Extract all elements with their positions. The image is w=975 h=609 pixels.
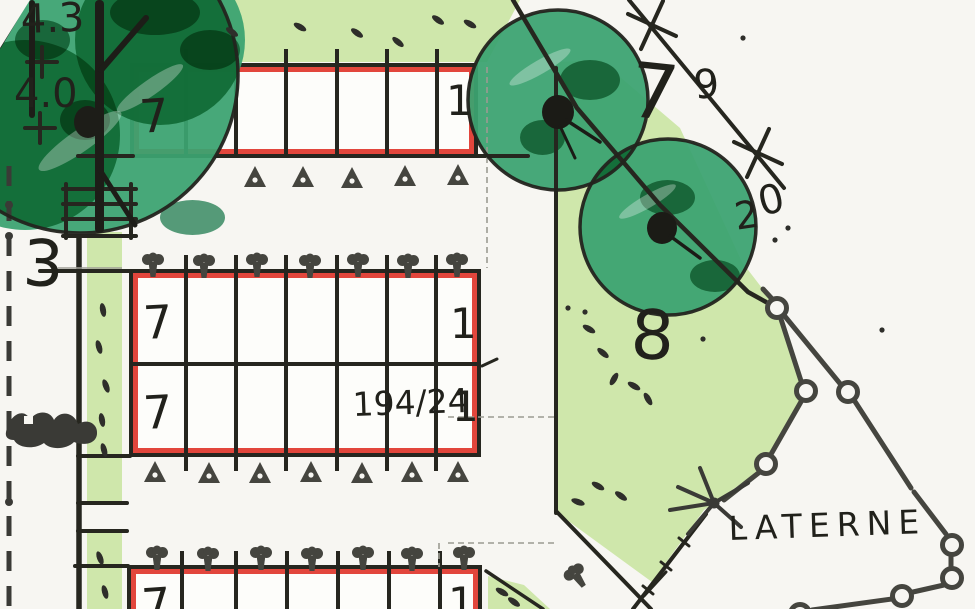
survey-number-label: 9 (692, 64, 721, 106)
stall-number-label: 7 (142, 388, 174, 435)
spot-height-label: 4.3 (20, 0, 85, 40)
area-number-label: 8 (630, 302, 676, 371)
spot-height-label: 4.0 (14, 74, 78, 114)
plan-labels: 4.34.0371717194/2417179208LATERNE (0, 0, 975, 609)
survey-number-label: 2 (732, 195, 761, 236)
stall-number-label: 7 (138, 92, 170, 140)
stall-number-label: 1 (450, 303, 477, 345)
site-plan: 4.34.0371717194/2417179208LATERNE (0, 0, 975, 609)
margin-number-label: 3 (22, 232, 65, 297)
stall-number-label: 1 (452, 386, 479, 428)
survey-number-label: 0 (754, 178, 788, 223)
lantern-label: LATERNE (728, 505, 927, 545)
stall-number-label: 1 (448, 582, 475, 609)
survey-number-label: 7 (626, 52, 682, 133)
stall-number-label: 7 (140, 581, 172, 609)
stall-number-label: 7 (142, 298, 174, 345)
stall-number-label: 1 (446, 80, 473, 122)
